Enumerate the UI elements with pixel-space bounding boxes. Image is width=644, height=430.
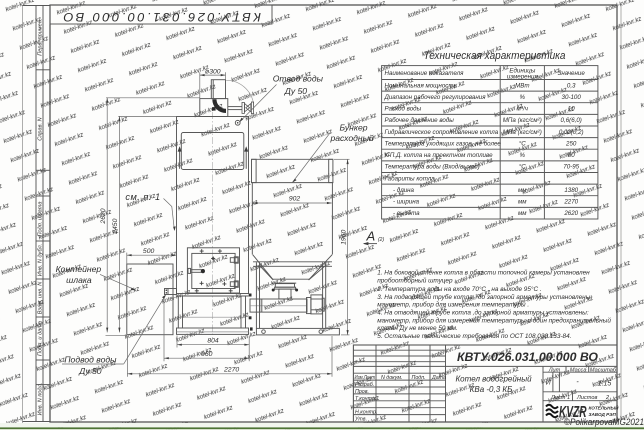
svg-text:Масса: Масса: [570, 367, 587, 373]
svg-text:2620: 2620: [563, 210, 578, 217]
svg-text:Лист: Лист: [550, 395, 566, 401]
svg-text:(2): (2): [378, 237, 384, 243]
svg-text:3. На подводящей трубе котла: 3. На подводящей трубе котла , до запорн…: [377, 293, 592, 301]
svg-text:м³/ч: м³/ч: [517, 106, 529, 113]
svg-text:К.П.Д. котла на проектном топл: К.П.Д. котла на проектном топливе: [385, 152, 494, 159]
svg-text:1: 1: [567, 395, 570, 401]
svg-text:Подп.: Подп.: [412, 375, 426, 381]
svg-text:Значение: Значение: [558, 70, 586, 77]
svg-text:902: 902: [289, 195, 301, 202]
svg-text:МПа (кгс/см²): МПа (кгс/см²): [503, 129, 542, 136]
svg-text:Температура воды (Вход/выход): Температура воды (Вход/выход): [385, 164, 480, 171]
svg-text:клапан Ду не менее 50 мм.: клапан Ду не менее 50 мм.: [377, 325, 458, 332]
svg-text:2450: 2450: [112, 218, 119, 234]
svg-text:Габариты котла: Габариты котла: [385, 175, 436, 182]
svg-text:10: 10: [568, 106, 575, 113]
svg-text:см. п. 1: см. п. 1: [125, 192, 160, 202]
svg-text:°С: °С: [519, 164, 526, 171]
svg-text:4. На отводящей трубе котла ,: 4. На отводящей трубе котла ,до запорной…: [377, 309, 589, 317]
svg-text:измерения: измерения: [507, 74, 539, 81]
svg-text:мм: мм: [518, 199, 527, 206]
svg-text:2. Температура воды на входе: 2. Температура воды на входе 70°С , на в…: [376, 285, 541, 293]
svg-text:Инв. N дубл.: Инв. N дубл.: [38, 244, 44, 276]
svg-text:Номинальная мощность: Номинальная мощность: [385, 82, 457, 89]
svg-text:0,02(0,2): 0,02(0,2): [559, 129, 584, 136]
svg-text:Подп. и дата: Подп. и дата: [38, 321, 44, 356]
svg-text:1380: 1380: [564, 187, 578, 194]
svg-text:Подвод воды: Подвод воды: [64, 354, 117, 364]
svg-text:©PolikarpovaMG2021: ©PolikarpovaMG2021: [564, 417, 644, 427]
svg-text:Диапазон рабочего регулировани: Диапазон рабочего регулирования: [384, 94, 487, 101]
svg-text:Температура уходящих газов, не: Температура уходящих газов, не более: [385, 140, 502, 147]
svg-text:1:15: 1:15: [598, 381, 612, 388]
svg-text:Техническая характеристика: Техническая характеристика: [424, 50, 566, 62]
svg-text:шлака: шлака: [66, 275, 92, 285]
svg-text:Ду 50: Ду 50: [78, 366, 102, 376]
svg-text:Н.контр.: Н.контр.: [355, 410, 377, 416]
svg-text:Ду 50: Ду 50: [284, 86, 308, 96]
svg-text:Гидравлическое сопротивление к: Гидравлическое сопротивление котла: [385, 129, 499, 136]
svg-text:1. На боковой стенке котла в: 1. На боковой стенке котла в области топ…: [377, 269, 590, 277]
svg-text:N докум.: N докум.: [381, 375, 402, 381]
svg-text:- длина: - длина: [393, 187, 415, 194]
svg-text:Наименование показателя: Наименование показателя: [385, 70, 465, 77]
svg-text:Листов: Листов: [576, 395, 597, 401]
svg-text:Пров.: Пров.: [355, 389, 369, 395]
svg-text:КВТУ.026.031.00.000 ВО: КВТУ.026.031.00.000 ВО: [61, 10, 261, 22]
svg-text:Лит: Лит: [548, 367, 561, 373]
svg-text:70-95: 70-95: [563, 164, 579, 171]
svg-text:Расход воды: Расход воды: [385, 106, 422, 113]
svg-text:Инв. N подл.: Инв. N подл.: [38, 383, 44, 416]
svg-text:МПа (кгс/см²): МПа (кгс/см²): [503, 117, 542, 124]
svg-text:Взам. инв. N: Взам. инв. N: [38, 281, 44, 315]
svg-text:2620: 2620: [100, 208, 107, 224]
svg-text:Изм.Лист: Изм.Лист: [355, 375, 376, 381]
svg-text:КВа -0,3 КБ: КВа -0,3 КБ: [470, 385, 513, 394]
svg-text:1960: 1960: [340, 230, 347, 245]
svg-text:Дата: Дата: [431, 375, 446, 381]
svg-text:КВТУ.026.031.00.000 ВО: КВТУ.026.031.00.000 ВО: [457, 350, 599, 364]
svg-text:80: 80: [568, 152, 575, 159]
svg-text:пробоотборный штуцер .: пробоотборный штуцер .: [377, 277, 456, 285]
svg-text:5. Остальные технические треб: 5. Остальные технические требования по О…: [377, 332, 571, 340]
svg-text:- ширина: - ширина: [393, 199, 420, 206]
svg-text:Бункер: Бункер: [339, 123, 367, 133]
svg-text:Разраб.: Разраб.: [355, 382, 374, 388]
svg-text:расходный: расходный: [329, 133, 373, 143]
svg-text:2270: 2270: [563, 199, 578, 206]
svg-text:Перв. примен.: Перв. примен.: [38, 19, 44, 56]
svg-text:%: %: [520, 94, 526, 101]
svg-text:Котел водогрейный: Котел водогрейный: [455, 374, 532, 383]
svg-text:манометр, прибор для измерения: манометр, прибор для измерения температу…: [377, 316, 611, 324]
svg-text:Рабочее давление воды: Рабочее давление воды: [385, 117, 455, 124]
svg-text:%: %: [520, 152, 526, 159]
svg-text:Справ. N: Справ. N: [38, 116, 44, 140]
svg-text:Отвод воды: Отвод воды: [273, 74, 324, 84]
svg-text:- высота: - высота: [393, 210, 420, 217]
svg-text:0,3: 0,3: [567, 82, 576, 89]
svg-text:2270: 2270: [223, 367, 239, 374]
svg-text:250: 250: [565, 140, 577, 147]
svg-text:960: 960: [201, 351, 213, 358]
svg-text:МВт: МВт: [515, 82, 529, 89]
svg-text:А: А: [366, 229, 376, 244]
svg-text:ø300: ø300: [205, 68, 221, 75]
svg-text:манометр, прибор для измерения: манометр, прибор для измерения температу…: [377, 301, 529, 309]
svg-text:мм: мм: [518, 210, 527, 217]
svg-text:Масштаб: Масштаб: [590, 367, 617, 373]
svg-text:Т.контр.: Т.контр.: [355, 396, 376, 402]
svg-text:0,6(6,0): 0,6(6,0): [561, 117, 582, 124]
svg-text:30-100: 30-100: [562, 94, 582, 101]
svg-text:Контейнер: Контейнер: [56, 264, 102, 274]
svg-text:804: 804: [207, 338, 219, 345]
svg-text:Подп. и дата: Подп. и дата: [38, 201, 44, 236]
svg-text:Утв.: Утв.: [355, 417, 367, 423]
svg-text:КОТЕЛЬНЫЙ: КОТЕЛЬНЫЙ: [589, 404, 620, 411]
svg-text:500: 500: [143, 248, 155, 255]
svg-text:°С: °С: [519, 140, 526, 147]
svg-text:мм: мм: [518, 187, 527, 194]
